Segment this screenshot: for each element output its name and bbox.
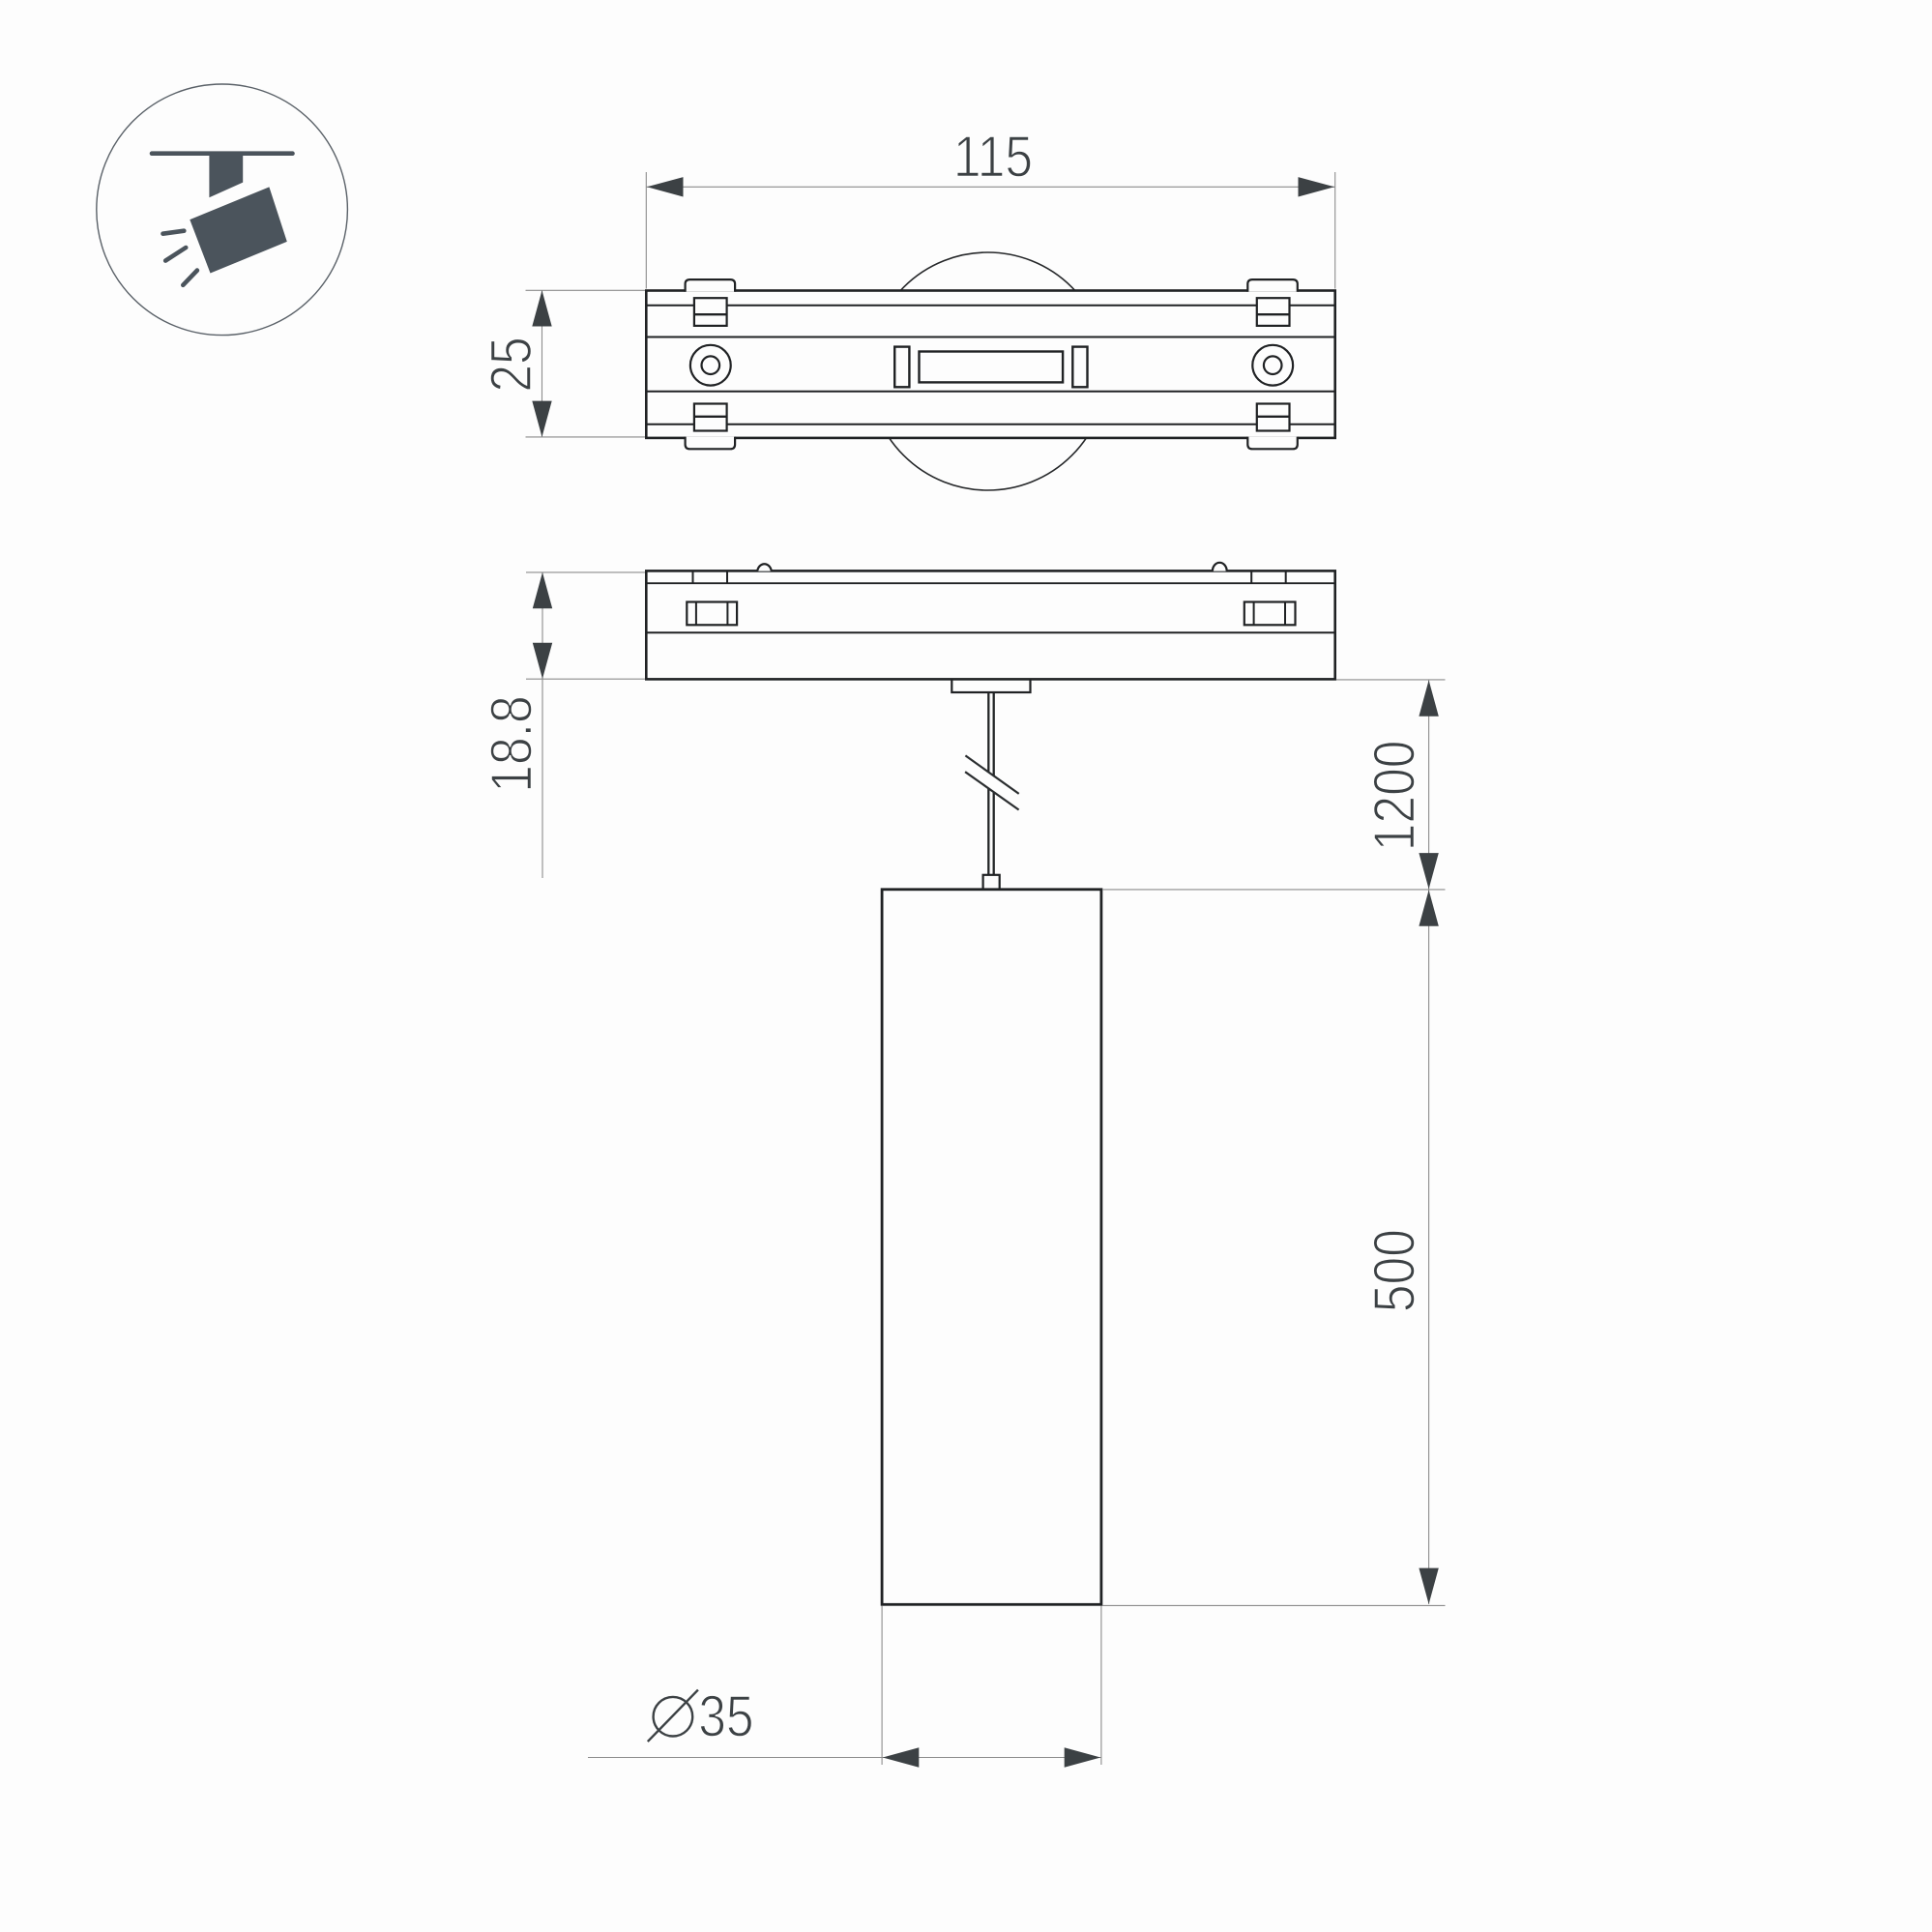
svg-text:18.8: 18.8 — [479, 695, 544, 792]
svg-text:35: 35 — [698, 1683, 753, 1749]
svg-text:115: 115 — [953, 124, 1033, 190]
svg-text:25: 25 — [478, 337, 543, 392]
svg-text:500: 500 — [1361, 1229, 1427, 1312]
svg-text:1200: 1200 — [1361, 741, 1427, 852]
